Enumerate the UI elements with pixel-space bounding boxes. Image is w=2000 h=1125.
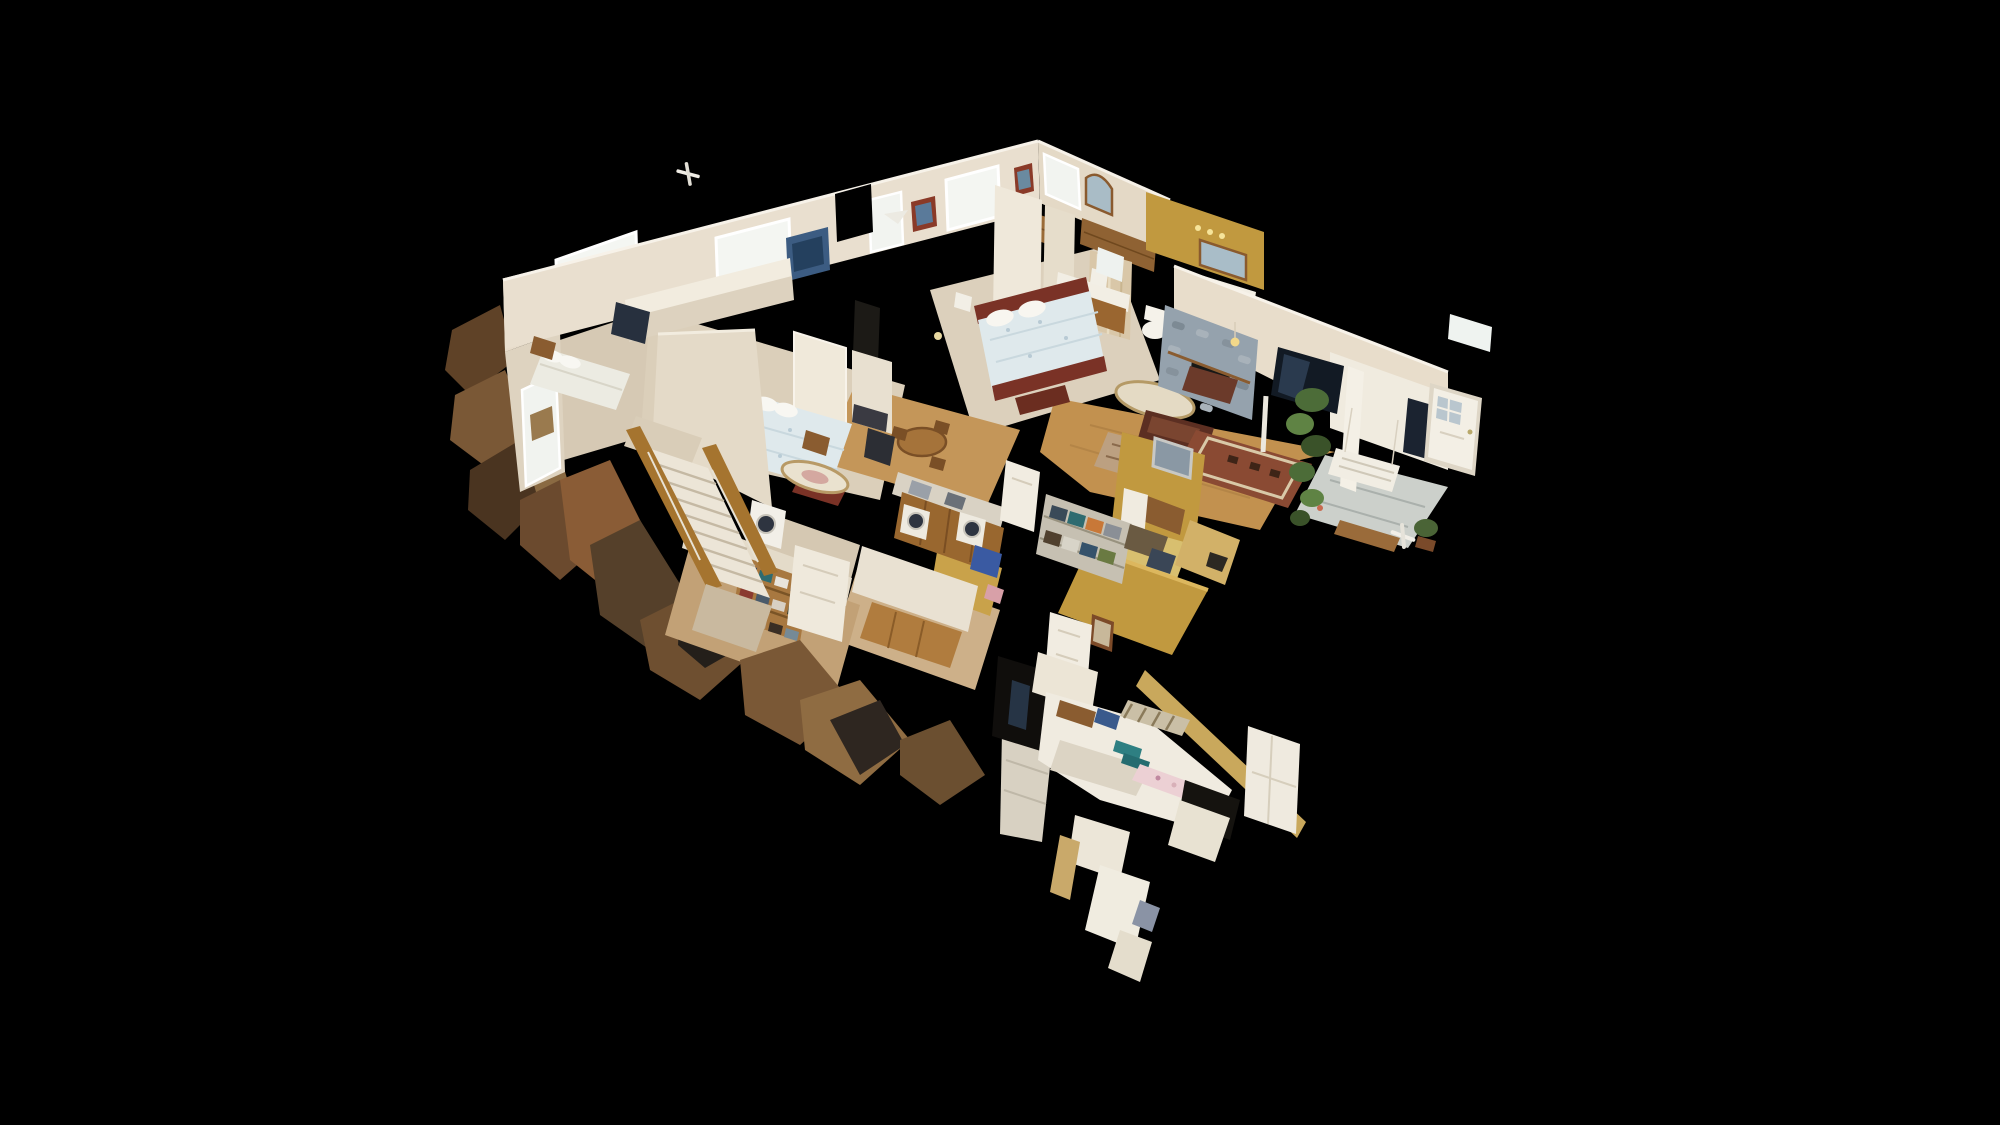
pantry-door [1000,460,1040,532]
dollhouse-viewport[interactable]: 3D dollhouse cutaway view of a scanned s… [0,0,2000,1125]
dryer-door [964,521,980,537]
plant-foliage [1301,435,1331,457]
plant-foliage [1295,388,1329,412]
quilt-dot [778,454,782,458]
washer-door [757,515,775,533]
floral-dot [1172,783,1177,788]
picture-art [1017,169,1031,190]
dollhouse-3d-view[interactable]: 3D dollhouse cutaway view of a scanned s… [0,0,2000,1125]
sconce-light [1207,229,1213,235]
washer-door [908,513,924,529]
doorway-gap [835,184,873,242]
picture-art [915,202,933,226]
floral-dot [1156,776,1161,781]
quilt-dot [1006,328,1010,332]
quilt-dot [1028,354,1032,358]
sconce-light [1195,225,1201,231]
plant-foliage [1286,413,1314,435]
tilted-white-door [787,545,850,642]
plant-foliage [1290,510,1310,526]
sconce-light [1219,233,1225,239]
light-fixture [934,332,942,340]
plant-flower [1317,505,1323,511]
plant-foliage [1289,462,1315,482]
plant-foliage [1300,489,1324,507]
quilt-dot [1064,336,1068,340]
quilt-dot [788,428,792,432]
door-knob [1468,430,1473,435]
front-door [1428,388,1478,470]
quilt-dot [1038,320,1042,324]
plant-foliage [1414,519,1438,537]
hanging-lamp [1231,338,1240,347]
